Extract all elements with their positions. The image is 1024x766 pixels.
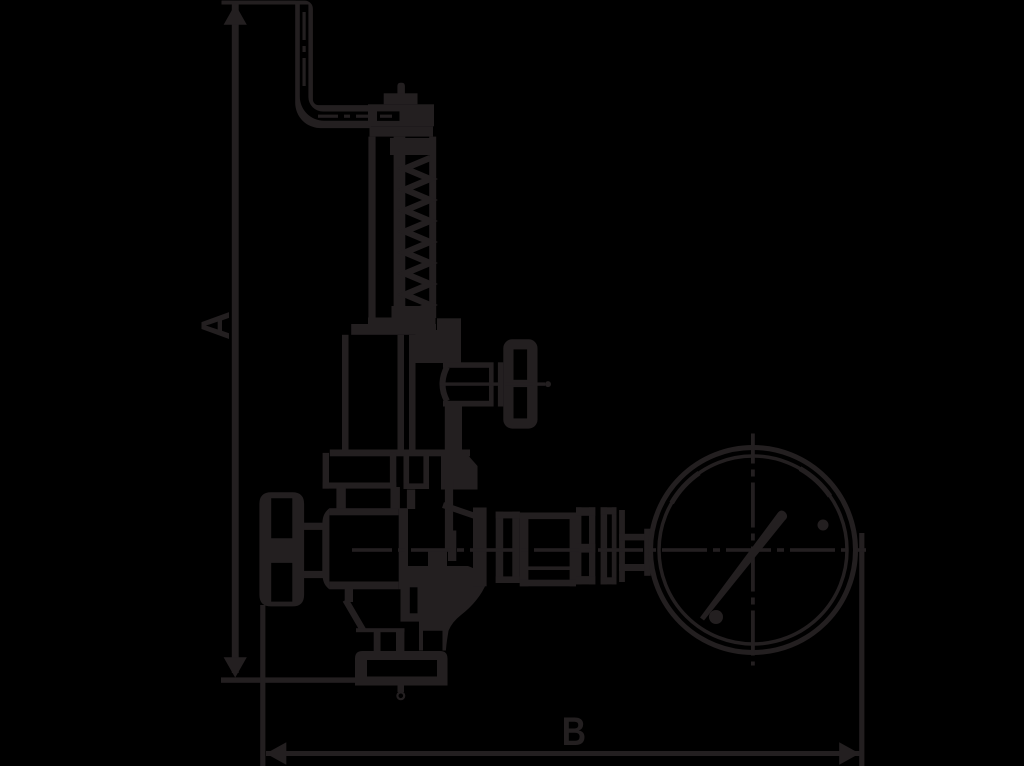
svg-text:A: A [194, 311, 238, 340]
svg-text:B: B [562, 709, 586, 753]
